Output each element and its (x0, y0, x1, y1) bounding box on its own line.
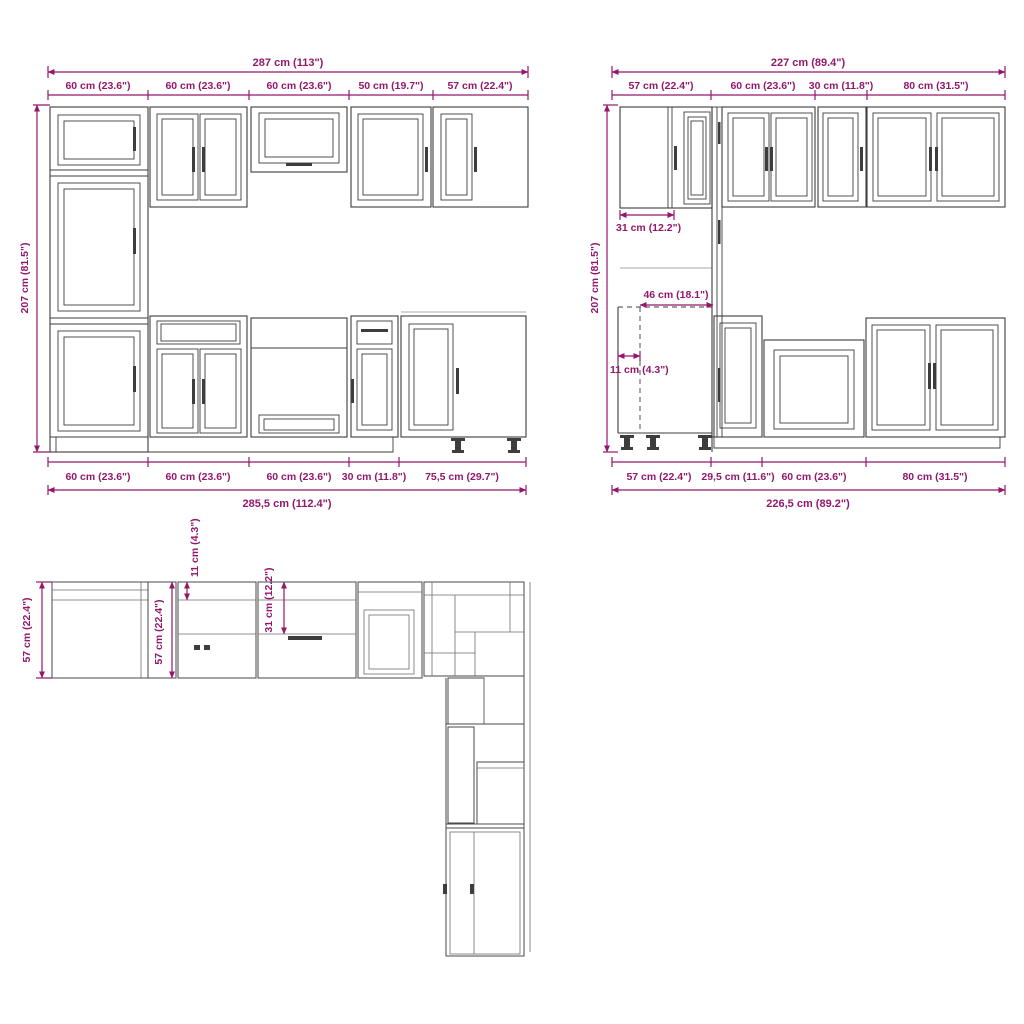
dim-side-corner-depth: 31 cm (12.2") (616, 222, 681, 234)
dim-side-top-seg-3: 30 cm (11.8") (809, 80, 874, 92)
dim-front-bottom-seg-1: 60 cm (23.6") (65, 471, 130, 483)
dim-front-height: 207 cm (81.5") (19, 243, 31, 314)
dim-front-bottom-seg-2: 60 cm (23.6") (165, 471, 230, 483)
dim-plan-depth-left: 57 cm (22.4") (21, 597, 33, 662)
dim-front-top-seg-2: 60 cm (23.6") (165, 80, 230, 92)
dim-front-bottom-seg-5: 75,5 cm (29.7") (425, 471, 499, 483)
dim-front-total-top: 287 cm (113") (253, 57, 324, 69)
dim-side-total-top: 227 cm (89.4") (771, 57, 846, 69)
dim-plan-depth-inner: 57 cm (22.4") (153, 599, 165, 664)
dim-side-total-bottom: 226,5 cm (89.2") (766, 498, 850, 510)
dim-front-top-seg-4: 50 cm (19.7") (358, 80, 423, 92)
front-elevation-drawing (50, 107, 528, 453)
dim-front-top-seg-1: 60 cm (23.6") (65, 80, 130, 92)
dim-side-bottom-seg-4: 80 cm (31.5") (902, 471, 967, 483)
dim-front-top-seg-5: 57 cm (22.4") (447, 80, 512, 92)
dim-front-total-bottom: 285,5 cm (112.4") (243, 498, 332, 510)
dim-front-bottom-seg-4: 30 cm (11.8") (342, 471, 407, 483)
dim-side-bottom-seg-1: 57 cm (22.4") (626, 471, 691, 483)
dim-side-top-seg-2: 60 cm (23.6") (730, 80, 795, 92)
kitchen-cabinet-dimension-diagram: 287 cm (113") 60 cm (23.6") 60 cm (23.6"… (0, 0, 1024, 1024)
side-elevation-drawing (618, 107, 1005, 452)
dim-front-top-seg-3: 60 cm (23.6") (266, 80, 331, 92)
dim-side-bottom-seg-2: 29,5 cm (11.6") (701, 471, 774, 483)
dim-front-bottom-seg-3: 60 cm (23.6") (266, 471, 331, 483)
dim-side-corner-clearance: 46 cm (18.1") (643, 289, 708, 301)
dim-plan-wall-depth: 31 cm (12.2") (263, 567, 275, 632)
dim-plan-filler-depth: 11 cm (4.3") (189, 518, 201, 577)
dim-side-top-seg-1: 57 cm (22.4") (628, 80, 693, 92)
plan-view-drawing (52, 582, 530, 956)
front-elevation-dimensions: 287 cm (113") 60 cm (23.6") 60 cm (23.6"… (19, 57, 528, 510)
plan-view-dimensions: 57 cm (22.4") 57 cm (22.4") 11 cm (4.3")… (21, 518, 284, 678)
dim-side-bottom-seg-3: 60 cm (23.6") (781, 471, 846, 483)
dim-side-filler-width: 11 cm (4.3") (610, 364, 669, 376)
dim-side-top-seg-4: 80 cm (31.5") (903, 80, 968, 92)
diagram-canvas: 287 cm (113") 60 cm (23.6") 60 cm (23.6"… (0, 0, 1024, 1024)
dim-side-height: 207 cm (81.5") (589, 243, 601, 314)
